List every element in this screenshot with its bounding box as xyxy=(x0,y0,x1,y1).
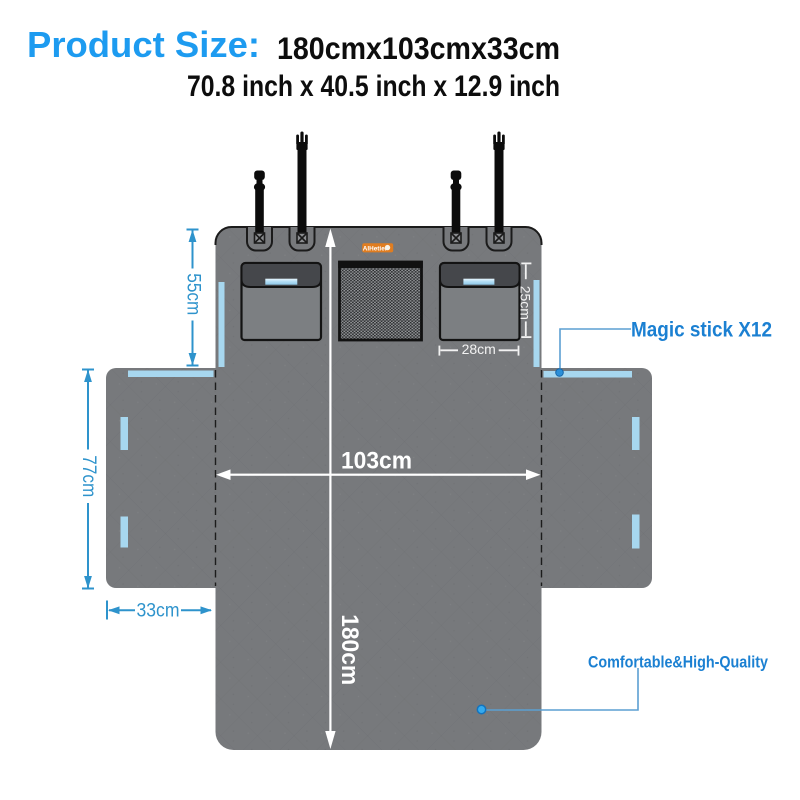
svg-text:33cm: 33cm xyxy=(137,600,180,621)
svg-text:70.8 inch x 40.5 inch x 12.9 i: 70.8 inch x 40.5 inch x 12.9 inch xyxy=(187,70,560,103)
svg-text:AlHetier: AlHetier xyxy=(363,245,388,252)
svg-text:77cm: 77cm xyxy=(78,455,99,497)
svg-text:Product Size:: Product Size: xyxy=(27,24,260,65)
svg-text:28cm: 28cm xyxy=(462,341,496,357)
svg-text:Magic stick X12: Magic stick X12 xyxy=(631,319,772,342)
svg-text:180cmx103cmx33cm: 180cmx103cmx33cm xyxy=(277,30,560,66)
svg-text:103cm: 103cm xyxy=(341,447,412,474)
svg-text:Comfortable&High-Quality: Comfortable&High-Quality xyxy=(588,652,768,671)
svg-text:55cm: 55cm xyxy=(183,273,204,315)
svg-text:25cm: 25cm xyxy=(518,286,534,320)
svg-text:180cm: 180cm xyxy=(336,614,363,685)
